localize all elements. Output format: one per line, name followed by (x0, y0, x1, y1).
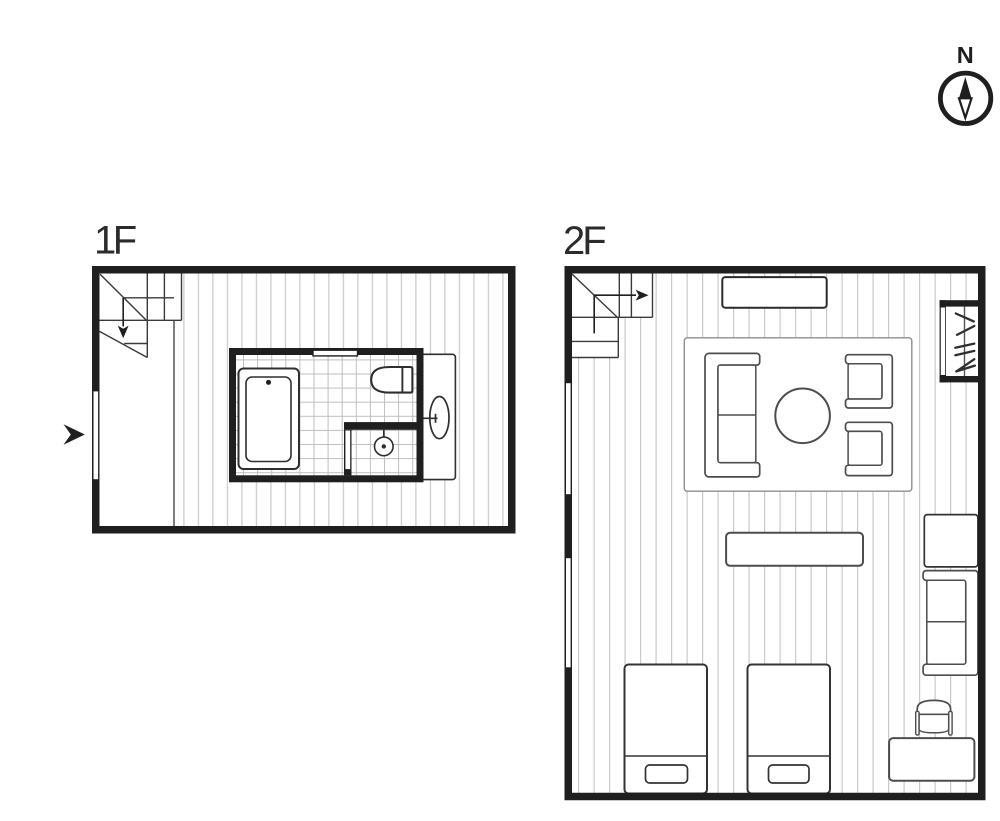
svg-text:2F: 2F (563, 219, 605, 263)
svg-text:N: N (957, 42, 974, 68)
svg-text:1F: 1F (94, 219, 136, 263)
